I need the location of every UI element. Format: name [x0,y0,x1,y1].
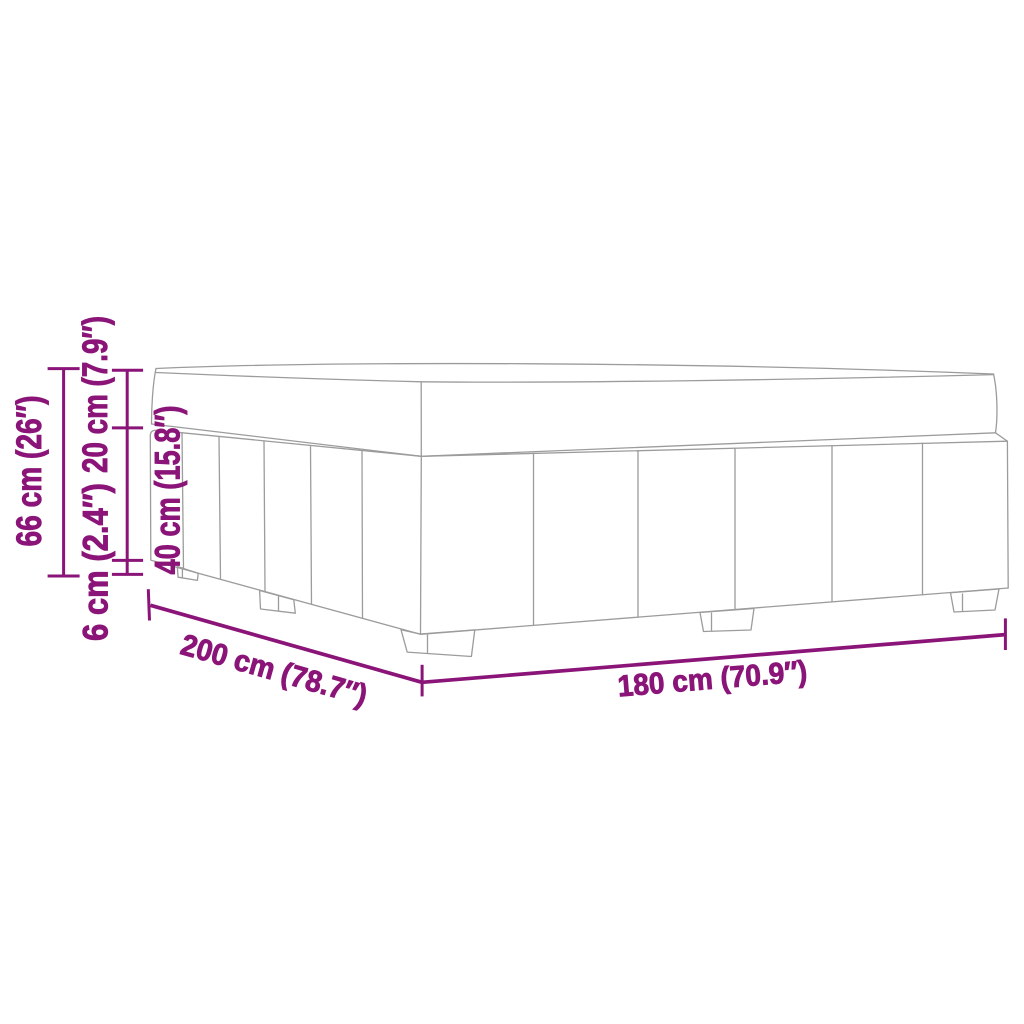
svg-text:6 cm (2.4″): 6 cm (2.4″) [77,483,116,641]
svg-text:66 cm (26″): 66 cm (26″) [10,396,49,547]
svg-text:40 cm (15.8″): 40 cm (15.8″) [149,406,188,575]
svg-text:20 cm (7.9″): 20 cm (7.9″) [76,316,115,473]
